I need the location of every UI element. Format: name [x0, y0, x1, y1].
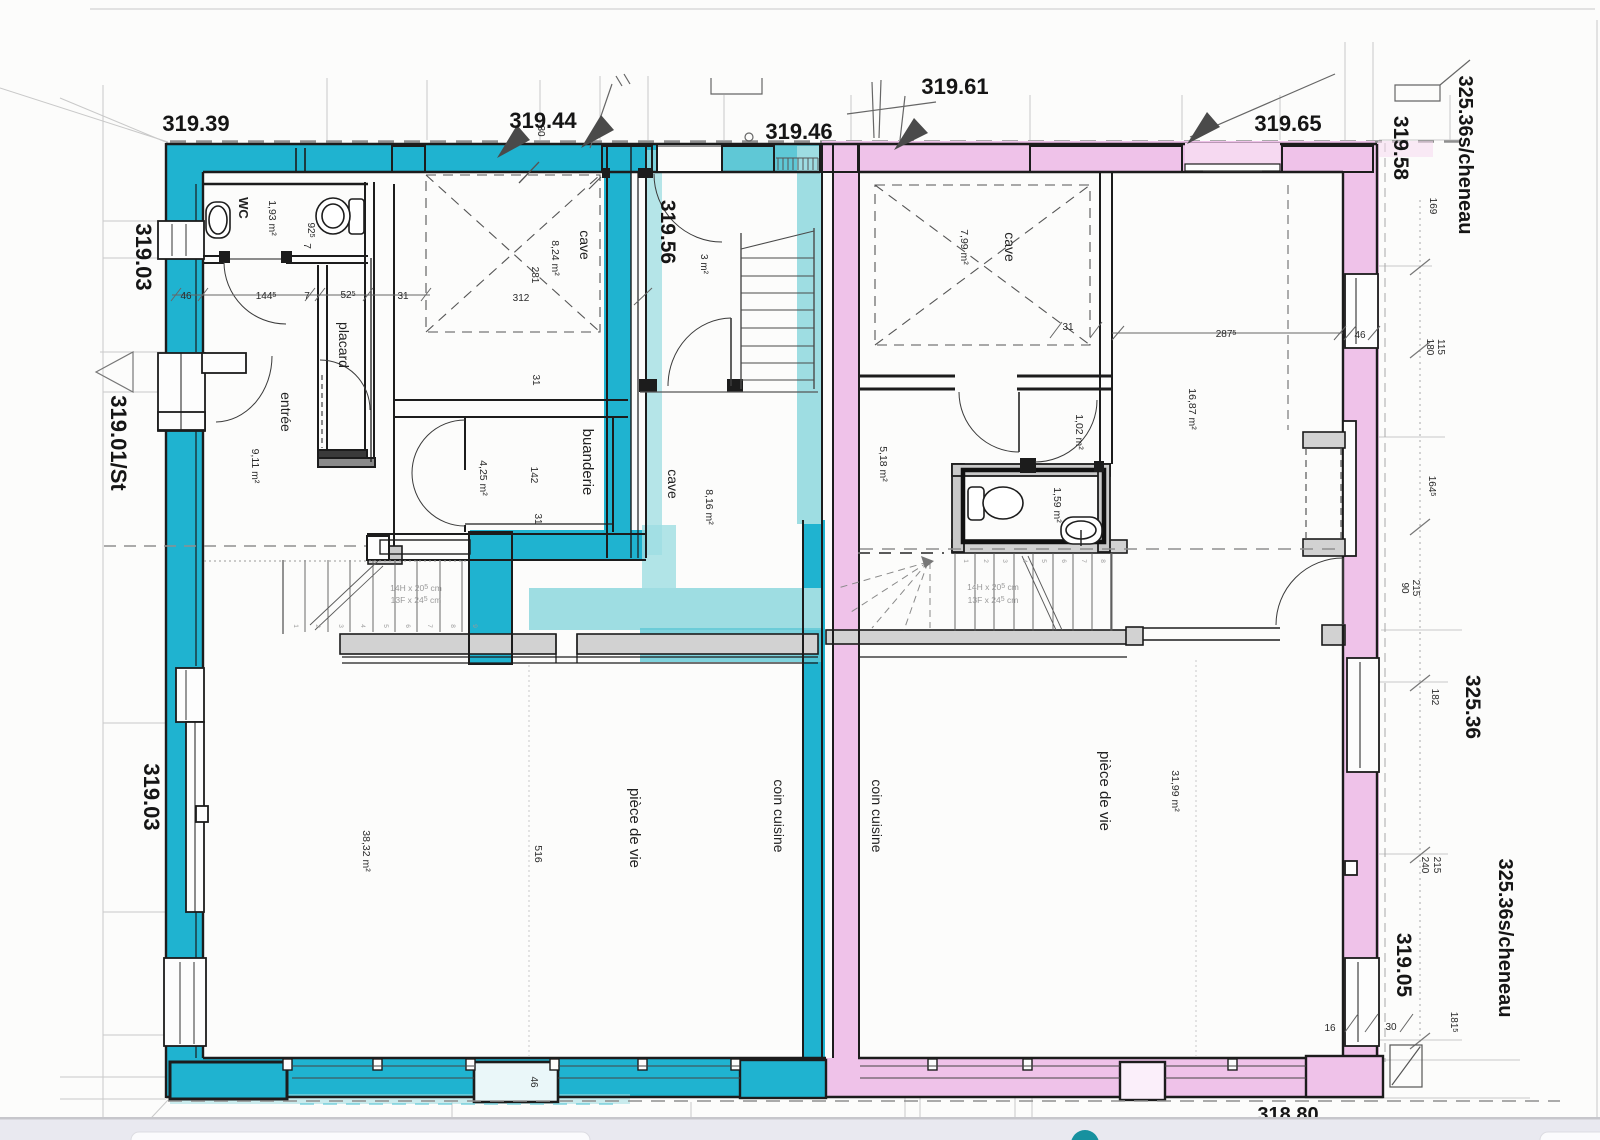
svg-text:5: 5: [1040, 559, 1047, 563]
svg-text:319.65: 319.65: [1254, 111, 1321, 136]
svg-text:8,16 m²: 8,16 m²: [703, 489, 715, 525]
svg-text:coin cuisine: coin cuisine: [771, 779, 787, 852]
svg-text:5,18 m²: 5,18 m²: [877, 446, 889, 482]
svg-text:319.46: 319.46: [765, 119, 832, 144]
svg-text:7: 7: [301, 243, 312, 249]
svg-text:cave: cave: [665, 469, 681, 499]
svg-text:46: 46: [1354, 330, 1366, 341]
svg-text:13F x 245 cm: 13F x 245 cm: [968, 595, 1019, 605]
svg-text:31: 31: [532, 513, 543, 525]
svg-text:2: 2: [982, 559, 989, 563]
svg-text:319.03: 319.03: [131, 223, 156, 290]
svg-text:319.56: 319.56: [656, 200, 679, 264]
svg-text:7: 7: [304, 291, 310, 302]
svg-text:312: 312: [513, 293, 530, 304]
svg-text:1: 1: [292, 624, 299, 628]
svg-text:cave: cave: [577, 230, 593, 260]
svg-text:9: 9: [471, 624, 478, 628]
svg-text:7: 7: [426, 624, 433, 628]
svg-text:142: 142: [528, 467, 539, 484]
svg-text:319.01/St: 319.01/St: [106, 395, 131, 491]
svg-text:6: 6: [1060, 559, 1067, 563]
svg-text:31: 31: [530, 374, 541, 386]
svg-text:215: 215: [1431, 857, 1442, 874]
svg-text:1,59 m²: 1,59 m²: [1051, 487, 1063, 523]
svg-text:90: 90: [1399, 582, 1410, 594]
svg-text:WC: WC: [236, 197, 251, 219]
svg-text:8: 8: [1099, 559, 1106, 563]
svg-text:319.05: 319.05: [1392, 933, 1415, 998]
svg-text:319.58: 319.58: [1389, 116, 1412, 181]
svg-text:5: 5: [382, 624, 389, 628]
svg-text:31: 31: [397, 291, 409, 302]
svg-text:16: 16: [1324, 1023, 1336, 1034]
svg-text:281: 281: [529, 267, 540, 284]
svg-text:buanderie: buanderie: [579, 429, 596, 496]
svg-text:31: 31: [1062, 322, 1074, 333]
svg-text:31,99 m²: 31,99 m²: [1169, 770, 1181, 812]
svg-text:placard: placard: [336, 322, 352, 368]
svg-text:319.03: 319.03: [139, 763, 164, 830]
svg-text:cave: cave: [1002, 232, 1018, 262]
svg-text:7: 7: [1080, 559, 1087, 563]
svg-text:325.36s/cheneau: 325.36s/cheneau: [1494, 859, 1516, 1018]
svg-text:30: 30: [1385, 1022, 1397, 1033]
svg-text:46: 46: [180, 291, 192, 302]
svg-text:6: 6: [404, 624, 411, 628]
svg-text:1,02 m²: 1,02 m²: [1073, 414, 1085, 450]
svg-text:1: 1: [962, 559, 969, 563]
svg-text:3: 3: [337, 624, 344, 628]
svg-text:319.61: 319.61: [921, 74, 988, 99]
svg-text:13F x 245 cm: 13F x 245 cm: [391, 595, 442, 605]
svg-text:3 m²: 3 m²: [698, 254, 709, 275]
svg-text:7,99 m²: 7,99 m²: [958, 229, 970, 265]
svg-text:pièce de vie: pièce de vie: [626, 788, 643, 868]
svg-text:8: 8: [449, 624, 456, 628]
svg-text:169: 169: [1427, 198, 1438, 215]
svg-text:240: 240: [1419, 857, 1430, 874]
svg-text:16,87 m²: 16,87 m²: [1186, 388, 1198, 430]
svg-text:1,93 m²: 1,93 m²: [266, 200, 278, 236]
svg-text:coin cuisine: coin cuisine: [869, 779, 885, 852]
svg-text:4: 4: [1021, 559, 1028, 563]
svg-text:14H x 205 cm: 14H x 205 cm: [967, 582, 1019, 592]
svg-text:180: 180: [1424, 339, 1435, 356]
svg-text:8,24 m²: 8,24 m²: [549, 240, 561, 276]
svg-text:115: 115: [1435, 339, 1446, 355]
svg-text:319.39: 319.39: [162, 111, 229, 136]
svg-text:4: 4: [359, 624, 366, 628]
svg-text:325.36s/cheneau: 325.36s/cheneau: [1454, 76, 1476, 235]
svg-text:215: 215: [1410, 580, 1421, 597]
svg-text:516: 516: [532, 845, 544, 863]
svg-text:entrée: entrée: [278, 392, 294, 432]
svg-text:182: 182: [1429, 689, 1440, 706]
svg-text:38,32 m²: 38,32 m²: [360, 830, 372, 872]
svg-text:2: 2: [314, 624, 321, 628]
svg-text:30: 30: [535, 125, 546, 137]
svg-text:46: 46: [528, 1076, 539, 1088]
svg-text:4,25 m²: 4,25 m²: [477, 460, 489, 496]
svg-text:pièce de vie: pièce de vie: [1096, 751, 1113, 831]
svg-text:3: 3: [1001, 559, 1008, 563]
svg-text:9,11 m²: 9,11 m²: [249, 449, 261, 484]
svg-text:14H x 205 cm: 14H x 205 cm: [390, 583, 442, 593]
svg-text:325.36: 325.36: [1461, 675, 1484, 739]
